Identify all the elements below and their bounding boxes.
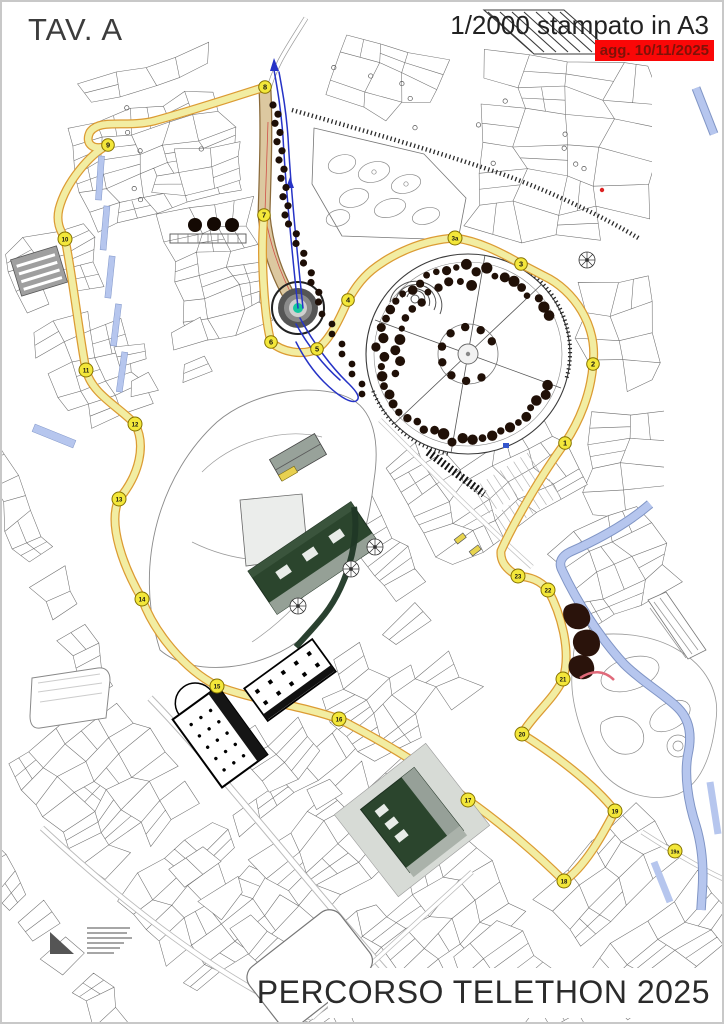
park-tree bbox=[343, 561, 359, 577]
svg-text:13: 13 bbox=[116, 498, 123, 504]
waypoint-marker: 9 bbox=[102, 139, 115, 152]
svg-text:11: 11 bbox=[83, 369, 90, 375]
map-svg: 1233a4567891011121314151617181919a202122… bbox=[2, 2, 724, 1024]
waypoint-marker: 1 bbox=[559, 437, 572, 450]
svg-text:10: 10 bbox=[62, 238, 69, 244]
waypoint-marker: 23 bbox=[511, 569, 525, 583]
waypoint-marker: 3 bbox=[515, 258, 528, 271]
svg-text:14: 14 bbox=[139, 598, 146, 604]
waypoint-marker: 15 bbox=[210, 679, 224, 693]
waypoint-marker: 8 bbox=[259, 81, 272, 94]
svg-text:12: 12 bbox=[132, 423, 139, 429]
svg-text:17: 17 bbox=[465, 799, 472, 805]
waypoint-marker: 11 bbox=[79, 363, 93, 377]
waypoint-marker: 2 bbox=[587, 358, 600, 371]
svg-text:3a: 3a bbox=[452, 237, 459, 243]
svg-text:21: 21 bbox=[560, 678, 567, 684]
svg-text:6: 6 bbox=[269, 338, 273, 347]
svg-text:9: 9 bbox=[106, 141, 110, 150]
waypoint-marker: 3a bbox=[448, 231, 462, 245]
svg-text:15: 15 bbox=[214, 685, 221, 691]
waypoint-marker: 7 bbox=[258, 209, 271, 222]
waypoint-marker: 12 bbox=[128, 417, 142, 431]
svg-text:22: 22 bbox=[545, 589, 552, 595]
map-sheet: 1233a4567891011121314151617181919a202122… bbox=[0, 0, 724, 1024]
title-band: PERCORSO TELETHON 2025 bbox=[328, 968, 720, 1018]
waypoint-marker: 21 bbox=[556, 672, 570, 686]
park-tree bbox=[367, 539, 383, 555]
waypoint-marker: 10 bbox=[58, 232, 72, 246]
waypoint-marker: 17 bbox=[461, 793, 475, 807]
svg-text:1: 1 bbox=[563, 439, 567, 448]
svg-text:19a: 19a bbox=[671, 850, 680, 856]
update-badge: agg. 10/11/2025 bbox=[595, 40, 714, 61]
waypoint-marker: 18 bbox=[557, 874, 571, 888]
map-title: PERCORSO TELETHON 2025 bbox=[257, 974, 710, 1011]
svg-text:7: 7 bbox=[262, 211, 266, 220]
park-tree bbox=[290, 598, 306, 614]
svg-text:20: 20 bbox=[519, 733, 526, 739]
scale-note: 1/2000 stampato in A3 bbox=[450, 10, 709, 41]
waypoint-marker: 22 bbox=[541, 583, 555, 597]
waypoint-marker: 19a bbox=[668, 844, 682, 858]
svg-text:18: 18 bbox=[561, 880, 568, 886]
svg-text:5: 5 bbox=[315, 345, 319, 354]
svg-text:3: 3 bbox=[519, 260, 523, 269]
waypoint-marker: 16 bbox=[332, 712, 346, 726]
waypoint-marker: 5 bbox=[311, 343, 324, 356]
svg-text:19: 19 bbox=[612, 810, 619, 816]
sheet-label: TAV. A bbox=[28, 12, 123, 48]
waypoint-marker: 14 bbox=[135, 592, 149, 606]
waypoint-marker: 4 bbox=[342, 294, 355, 307]
waypoint-marker: 20 bbox=[515, 727, 529, 741]
svg-text:23: 23 bbox=[515, 575, 522, 581]
waypoint-marker: 19 bbox=[608, 804, 622, 818]
park-tree bbox=[579, 252, 595, 268]
waypoint-marker: 6 bbox=[265, 336, 278, 349]
svg-text:16: 16 bbox=[336, 718, 343, 724]
svg-text:2: 2 bbox=[591, 360, 595, 369]
svg-text:8: 8 bbox=[263, 83, 267, 92]
waypoint-marker: 13 bbox=[112, 492, 126, 506]
